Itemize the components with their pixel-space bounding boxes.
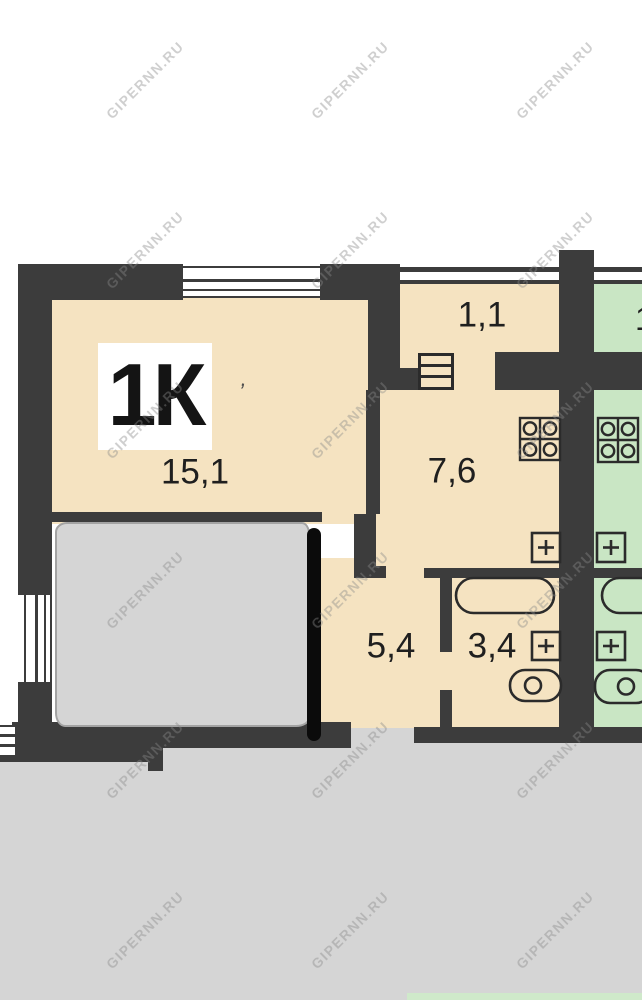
floor-plan: 1К 15,1 7,6 1,1 5,4 3,4 1 , GIPERNN.RUGI… [0,0,642,1000]
unit-type-label: 1К [108,344,203,446]
watermark-text: GIPERNN.RU [103,38,187,122]
wall-left-lower [18,682,52,727]
wall-top-right [320,264,400,300]
bathroom-area-label: 3,4 [468,629,517,664]
marker-line [307,528,321,741]
wall-bottom-left-lower [0,748,163,762]
balcony-area-label: 1,1 [458,298,507,333]
neighbor-area-label-clipped: 1 [635,302,642,332]
wall-balcony-kitchen [495,352,559,390]
neighbor-green-strip [407,993,642,1000]
watermark-text: GIPERNN.RU [308,38,392,122]
erased-block [55,522,310,727]
living-room-lower-wall-line [50,512,322,522]
living-room-area-label: 15,1 [161,455,229,490]
wall-left-upper [18,264,52,595]
wall-bottom-right [414,727,642,743]
hallway-bathroom-floor [308,558,560,728]
window-top-icon [183,266,320,298]
wall-party-vertical [559,250,594,743]
wall-vent-connector [398,368,420,390]
wall-bottom-stub [148,762,163,771]
wall-bathroom-left-upper [440,578,452,652]
unit-type-badge: 1К [98,343,212,450]
balcony-parapet-line [400,267,642,272]
kitchen-area-label: 7,6 [428,454,477,489]
window-left-icon [24,595,52,682]
wall-neighbor-arm [593,352,642,390]
wall-neighbor-bathroom-top [594,568,642,578]
wall-room-divider-upper [368,296,400,390]
wall-divider-foot [354,566,386,578]
wall-bathroom-left-lower [440,690,452,727]
balcony-glazing-line [400,280,642,284]
corridor-erased-area [0,743,642,1000]
watermark-text: GIPERNN.RU [513,38,597,122]
neighbor-apartment-floor [594,282,642,728]
wall-bathroom-top [424,568,560,578]
window-corridor-icon [0,725,15,757]
vent-shaft-icon [418,353,454,390]
wall-room-divider-lower [366,390,380,514]
hallway-area-label: 5,4 [367,629,416,664]
